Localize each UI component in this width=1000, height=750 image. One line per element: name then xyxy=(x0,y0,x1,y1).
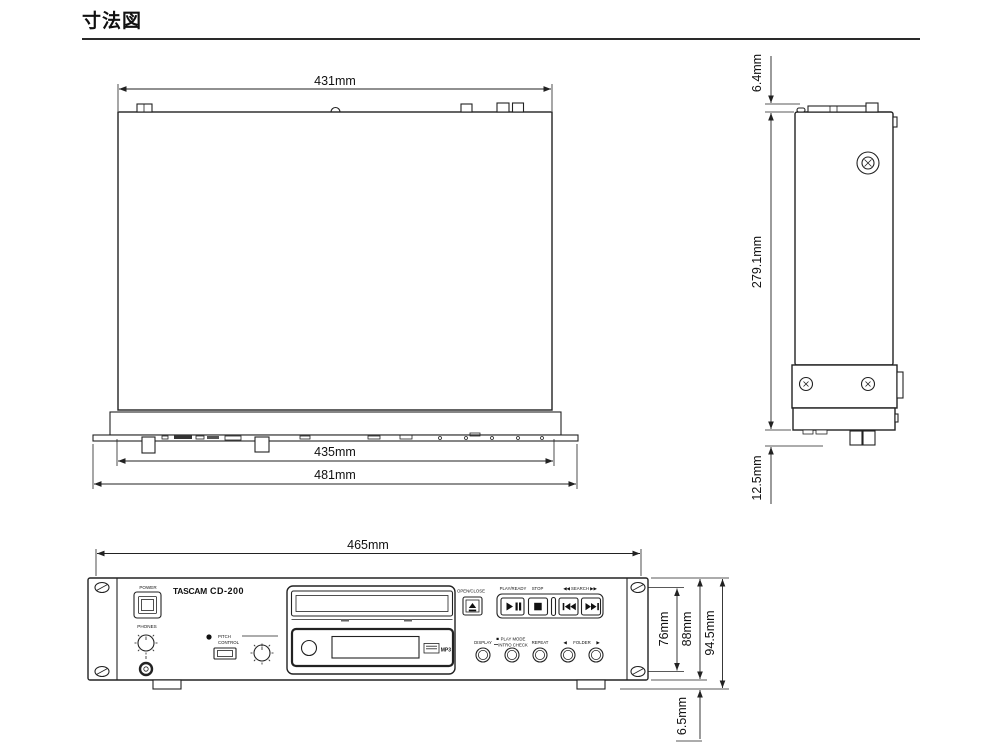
rack-screw-hole-icon xyxy=(631,667,645,677)
technical-drawing: 431mm 435mm 481mm xyxy=(0,0,1000,750)
rear-connector-icon xyxy=(513,103,524,112)
search-rew-button xyxy=(559,598,578,615)
dim-label-431mm: 431mm xyxy=(314,74,356,88)
transport-button-group xyxy=(497,594,603,618)
rack-screw-hole-icon xyxy=(95,583,109,593)
display-window xyxy=(332,637,419,659)
rear-connector-icon xyxy=(497,103,509,112)
dim-label-76mm: 76mm xyxy=(657,612,671,647)
open-close-label: OPEN/CLOSE xyxy=(457,589,485,594)
dim-label-435mm: 435mm xyxy=(314,445,356,459)
crosshead-screw-icon xyxy=(857,152,879,174)
stop-label: STOP xyxy=(532,586,544,591)
disc-tray xyxy=(292,591,453,616)
dim-label-94-5mm: 94.5mm xyxy=(703,610,717,655)
dim-label-88mm: 88mm xyxy=(680,612,694,647)
crosshead-screw-icon xyxy=(800,378,813,391)
play-pause-button xyxy=(501,598,524,615)
front-foot xyxy=(577,680,605,689)
mp3-label: MP3 xyxy=(441,648,452,654)
side-view-front-panel-edge xyxy=(793,408,895,430)
open-close-button xyxy=(463,597,482,615)
side-view: 6.4mm 279.1mm 12.5mm xyxy=(750,54,903,504)
play-ready-label: PLAY/READY xyxy=(500,586,527,591)
rack-screw-hole-icon xyxy=(631,583,645,593)
play-mode-intro-check-button xyxy=(505,648,519,662)
top-view-front-panel xyxy=(110,412,561,435)
pitch-label-line1: PITCH xyxy=(218,634,231,639)
search-fwd-button xyxy=(582,598,601,615)
repeat-label: REPEAT xyxy=(532,640,549,645)
search-label: ◀◀ SEARCH ▶▶ xyxy=(563,586,597,591)
power-label: POWER xyxy=(139,585,157,590)
crosshead-screw-icon xyxy=(862,378,875,391)
front-view: 465mm 76mm 88mm 94.5mm 6.5mm xyxy=(88,538,729,741)
dim-label-12-5mm: 12.5mm xyxy=(750,455,764,500)
top-view: 431mm 435mm 481mm xyxy=(93,74,578,489)
stop-button xyxy=(529,598,548,615)
dim-label-465mm: 465mm xyxy=(347,538,389,552)
display-button-label: DISPLAY xyxy=(474,640,492,645)
dim-label-6-5mm: 6.5mm xyxy=(675,697,689,735)
top-view-chassis xyxy=(118,112,552,410)
led-dot-icon xyxy=(206,634,211,639)
repeat-button xyxy=(533,648,547,662)
rack-screw-hole-icon xyxy=(95,667,109,677)
model-label: CD-200 xyxy=(210,586,244,596)
intro-check-label: INTRO CHECK xyxy=(498,643,528,648)
dim-label-279-1mm: 279.1mm xyxy=(750,236,764,288)
transport-divider xyxy=(552,598,556,616)
top-view-foot xyxy=(255,437,269,452)
front-foot xyxy=(153,680,181,689)
rear-connector-icon xyxy=(137,104,152,112)
phones-jack xyxy=(140,663,152,675)
pitch-control-button xyxy=(214,648,236,659)
play-mode-label: PLAY MODE xyxy=(501,637,526,642)
front-panel: POWER TASCAM CD-200 PHONES xyxy=(88,578,648,689)
dim-label-6-4mm: 6.4mm xyxy=(750,54,764,92)
dim-label-481mm: 481mm xyxy=(314,468,356,482)
side-view-body xyxy=(792,103,903,445)
power-button xyxy=(134,592,161,618)
display-button xyxy=(476,648,490,662)
stop-square-icon xyxy=(534,603,542,611)
side-view-foot xyxy=(863,431,875,445)
top-view-body xyxy=(93,103,578,453)
disc-tray-assembly: MP3 xyxy=(287,586,455,674)
rear-connector-icon xyxy=(461,104,472,112)
top-view-foot xyxy=(142,437,155,453)
phones-label: PHONES xyxy=(137,624,156,629)
side-view-chassis xyxy=(795,112,893,365)
tray-tab xyxy=(404,619,412,622)
side-view-foot xyxy=(850,431,862,445)
dimension-diagram-page: 寸法図 xyxy=(0,0,1000,750)
folder-next-button xyxy=(589,648,603,662)
brand-logo: TASCAM xyxy=(173,586,207,596)
folder-prev-button xyxy=(561,648,575,662)
tray-tab xyxy=(341,619,349,622)
folder-label: FOLDER xyxy=(573,640,590,645)
pitch-label-line2: CONTROL xyxy=(218,640,240,645)
